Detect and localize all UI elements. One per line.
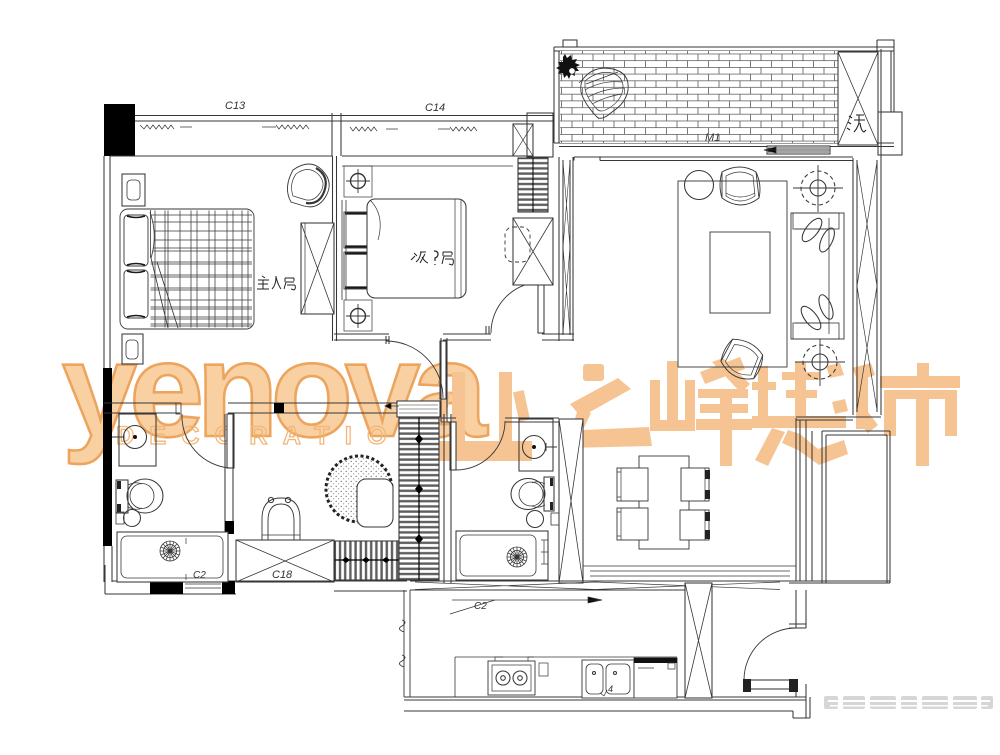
svg-text:DECORATION: DECORATION <box>116 422 435 450</box>
svg-text:C2: C2 <box>474 601 487 612</box>
svg-text:C2: C2 <box>193 570 206 581</box>
svg-text:M1: M1 <box>705 132 720 144</box>
svg-text:C13: C13 <box>225 100 246 112</box>
svg-text:C18: C18 <box>272 569 293 581</box>
svg-text:4: 4 <box>608 684 613 694</box>
svg-text:C14: C14 <box>425 102 445 114</box>
